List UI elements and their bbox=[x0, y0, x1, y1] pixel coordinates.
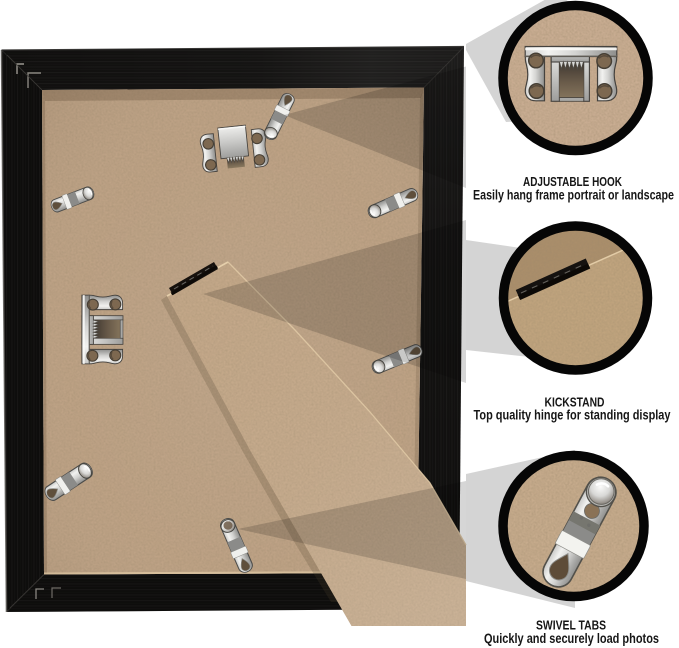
svg-text:Top quality hinge for standing: Top quality hinge for standing display bbox=[474, 408, 671, 423]
svg-text:Quickly and securely load phot: Quickly and securely load photos bbox=[484, 631, 659, 646]
svg-text:Easily hang frame portrait or: Easily hang frame portrait or landscape bbox=[473, 188, 674, 203]
